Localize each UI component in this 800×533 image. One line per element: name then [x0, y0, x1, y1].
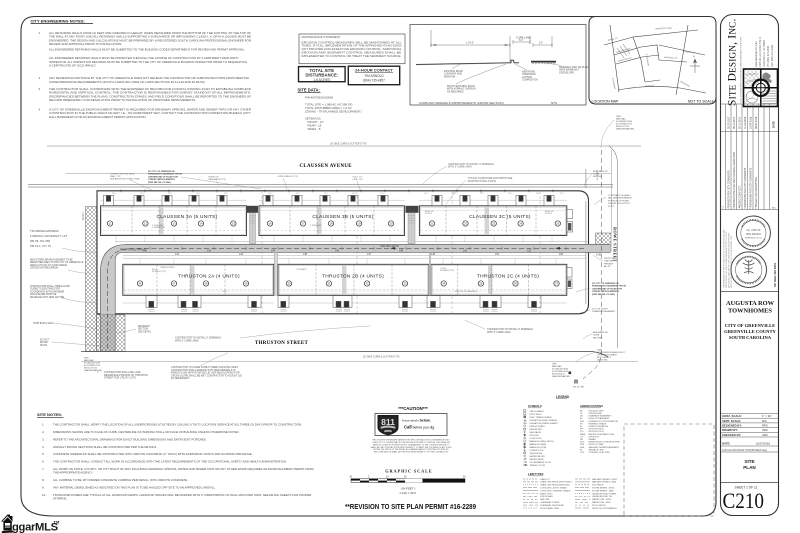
svg-text:32: 32: [366, 282, 369, 286]
svg-text:REFER TO THE ARCHITECTURAL DRA: REFER TO THE ARCHITECTURAL DRAWINGS FOR …: [53, 437, 207, 441]
svg-text:6.: 6.: [42, 460, 45, 464]
svg-text:L52: L52: [527, 250, 532, 253]
svg-text:(NAVD88/NAVD88): (NAVD88/NAVD88): [552, 375, 570, 378]
svg-text:L49: L49: [431, 253, 436, 256]
svg-text:OVERHEAD TELEPHONE: OVERHEAD TELEPHONE: [540, 504, 565, 507]
svg-text:CLAUSSEN AVENUE: CLAUSSEN AVENUE: [300, 164, 353, 169]
svg-text:27.0': 27.0': [508, 193, 512, 195]
svg-text:OVERHEAD POWER: OVERHEAD POWER: [540, 501, 560, 504]
svg-text:LIGHT POLE: LIGHT POLE: [530, 438, 543, 440]
svg-text:S: S: [524, 444, 525, 446]
svg-text:VITRIFIED CLAY PIPE: VITRIFIED CLAY PIPE: [589, 451, 611, 454]
svg-text:2+00: 2+00: [596, 254, 602, 257]
svg-text:THRUSTON 2A (4 UNITS): THRUSTON 2A (4 UNITS): [178, 274, 240, 280]
svg-text:27.0': 27.0': [452, 193, 456, 195]
svg-text:SETBACK(TYP): SETBACK(TYP): [440, 269, 454, 272]
svg-text:DISTURBANCE:: DISTURBANCE:: [305, 73, 338, 78]
svg-text:PB 13-L, PC 76: PB 13-L, PC 76: [30, 244, 51, 248]
svg-text:8.: 8.: [42, 478, 45, 482]
svg-text:VCP: VCP: [580, 452, 585, 454]
svg-text:DRAINAGE EASEMENT: DRAINAGE EASEMENT: [589, 415, 613, 418]
svg-text:TM #0091012500000: TM #0091012500000: [30, 229, 59, 233]
svg-text:COMPLETION: COMPLETION: [522, 79, 538, 82]
svg-text:WITH 2' CURB LAWN: WITH 2' CURB LAWN: [487, 331, 511, 334]
svg-text:SANITARY SEWER - EXIST.: SANITARY SEWER - EXIST.: [592, 478, 618, 481]
svg-text:DATE: DATE: [772, 121, 776, 128]
svg-text:TRAFFIC FLOW: TRAFFIC FLOW: [530, 464, 545, 467]
svg-text:7.: 7.: [97, 371, 99, 374]
svg-text:GREENVILLE SC: GREENVILLE SC: [745, 237, 763, 239]
svg-text:C210: C210: [723, 488, 765, 513]
svg-text:DESIGNED BY:: DESIGNED BY:: [722, 424, 742, 428]
svg-text:02-27-2017: 02-27-2017: [728, 116, 731, 129]
svg-text:SIDES - 5': SIDES - 5': [308, 127, 322, 131]
svg-text:27.0': 27.0': [168, 193, 172, 195]
svg-text:14: 14: [200, 222, 203, 226]
svg-text:FH 1/2" RD: FH 1/2" RD: [573, 387, 585, 389]
svg-text:CURB: CURB: [593, 335, 600, 337]
svg-text:19: 19: [358, 222, 361, 226]
svg-text:CITY OF GREENVILLE: CITY OF GREENVILLE: [725, 323, 775, 328]
svg-text:STREET IMPROVEMENTS: STREET IMPROVEMENTS: [592, 291, 620, 293]
svg-text:25: 25: [556, 222, 559, 226]
svg-text:GREENVILLE, SC 29607: GREENVILLE, SC 29607: [763, 39, 766, 67]
svg-text:NO.: NO.: [772, 207, 776, 209]
svg-text:JSM: JSM: [762, 428, 768, 432]
svg-text:GAS VALVE: GAS VALVE: [530, 431, 542, 434]
svg-text:9.: 9.: [42, 485, 45, 489]
svg-text:WITHOUT WRITTEN CONSENT OF SIT: WITHOUT WRITTEN CONSENT OF SITE DESIGN I…: [731, 236, 733, 288]
svg-text:THRUSTON 2B (4 UNITS): THRUSTON 2B (4 UNITS): [322, 274, 384, 280]
svg-text:LEGEND: LEGEND: [556, 395, 570, 399]
svg-text:27.0': 27.0': [296, 193, 300, 195]
svg-text:ASPHALT PAVING SECTIONS SHALL: ASPHALT PAVING SECTIONS SHALL BE CONSTRU…: [53, 445, 157, 449]
svg-text:26: 26: [139, 282, 142, 286]
svg-text:27.0': 27.0': [424, 193, 428, 195]
svg-text:STREET IMPROVEMENTS: STREET IMPROVEMENTS: [148, 179, 176, 181]
svg-text:(PER DB 536, PG 886): (PER DB 536, PG 886): [592, 294, 615, 296]
svg-text:REVISED PER CITY COMMENTS: REVISED PER CITY COMMENTS: [728, 170, 731, 207]
svg-text:21: 21: [431, 222, 434, 226]
svg-text:PLAN: PLAN: [743, 465, 756, 470]
svg-text:INVERT ELEVATION: INVERT ELEVATION: [589, 425, 609, 428]
svg-text:HORZ. SCALE:: HORZ. SCALE:: [722, 414, 742, 418]
svg-text:TRIANGLE EASEMENT: TRIANGLE EASEMENT: [592, 310, 616, 313]
svg-text:10.: 10.: [42, 493, 46, 497]
svg-text:MANHOLE (STM): MANHOLE (STM): [530, 446, 547, 449]
svg-text:LINE, TYP: LINE, TYP: [353, 179, 364, 181]
svg-text:SETBACK(TYP): SETBACK(TYP): [152, 270, 166, 273]
svg-text:35: 35: [479, 282, 482, 286]
svg-text:3.: 3.: [39, 87, 42, 91]
svg-text:NTS: NTS: [551, 101, 557, 105]
svg-text:GAS LINE: GAS LINE: [540, 498, 550, 501]
svg-text:7.: 7.: [42, 467, 45, 471]
svg-text:PROPOSED: PROPOSED: [604, 258, 617, 260]
svg-text:WITH 2' CURB LAWN: WITH 2' CURB LAWN: [448, 166, 472, 169]
svg-text:PH: (864) 271-0496: PH: (864) 271-0496: [767, 45, 770, 67]
svg-text:36: 36: [514, 282, 517, 286]
svg-text:27.0': 27.0': [324, 193, 328, 195]
svg-text:4.: 4.: [42, 445, 45, 449]
svg-text:CONCRETE SIDEWALKS SHALL BE CO: CONCRETE SIDEWALKS SHALL BE CONSTRUCTED …: [53, 452, 253, 456]
svg-text:30' DIKE CURB & GUTTER (TYP): 30' DIKE CURB & GUTTER (TYP): [330, 143, 367, 146]
svg-text:PERMANENT EASEMENT FROM: PERMANENT EASEMENT FROM: [148, 173, 182, 176]
svg-text:PIN #0070500100500: PIN #0070500100500: [305, 95, 334, 99]
svg-text:ISSUED FOR PERMITTING: ISSUED FOR PERMITTING: [755, 177, 758, 207]
svg-text:CROSSLOPE: CROSSLOPE: [559, 71, 574, 74]
svg-text:TM: TM: [54, 520, 60, 525]
svg-text:15: 15: [232, 222, 235, 226]
svg-text:EDGE OF PAVEMENT: EDGE OF PAVEMENT: [589, 417, 611, 420]
svg-text:FORCE MAIN: FORCE MAIN: [540, 495, 553, 498]
svg-text:4.: 4.: [39, 108, 42, 112]
svg-text:(CROSS HATCHED AREA): (CROSS HATCHED AREA): [30, 267, 58, 270]
svg-text:HALL BASEMENT) FOR AN ENCROACH: HALL BASEMENT) FOR AN ENCROACHMENT PERMI…: [49, 115, 147, 119]
svg-text:DIMENSIONS SHOWN ARE TO FACE O: DIMENSIONS SHOWN ARE TO FACE OF CURB, CE…: [53, 430, 240, 434]
svg-text:WINDOW 25.5 AVERAGE: WINDOW 25.5 AVERAGE: [455, 290, 478, 293]
svg-text:CUTS: CUTS: [608, 206, 614, 208]
svg-text:34: 34: [442, 282, 445, 286]
svg-text:27.0': 27.0': [536, 193, 540, 195]
svg-text:DO NOT: DO NOT: [40, 340, 50, 342]
svg-text:SILT FENCE: SILT FENCE: [592, 485, 604, 487]
svg-text:SC REG NO 2857: SC REG NO 2857: [773, 262, 777, 287]
svg-text:26.0': 26.0': [223, 291, 228, 293]
svg-text:REVISED SITE PLAN PER GENERAL: REVISED SITE PLAN PER GENERAL DEVELOPM: [733, 152, 736, 207]
svg-text:CURB AND SIDEWALK IMPROVEMENTS: CURB AND SIDEWALK IMPROVEMENTS (CROSS SE…: [419, 101, 504, 105]
svg-text:ALLEY: ALLEY: [604, 265, 611, 268]
svg-text:(PER DB 536, PG 886): (PER DB 536, PG 886): [148, 182, 171, 184]
svg-text:ENTER: ENTER: [40, 342, 48, 344]
svg-text:31: 31: [328, 282, 331, 286]
svg-text:STORMWATER FLOW: STORMWATER FLOW: [530, 461, 551, 464]
svg-text:SITE DESIGN, INC.: SITE DESIGN, INC.: [727, 18, 739, 106]
svg-text:20' CITY OF GREENVILLE: 20' CITY OF GREENVILLE: [148, 171, 175, 173]
svg-text:(NAVD88/NAVD88): (NAVD88/NAVD88): [616, 128, 634, 131]
svg-text:SIGNS: SIGNS: [40, 345, 48, 347]
svg-text:RPS: RPS: [762, 424, 768, 428]
svg-text:PORCH: PORCH: [545, 213, 552, 215]
svg-text:1325 MILLER ROAD STE D: 1325 MILLER ROAD STE D: [759, 37, 762, 67]
svg-text:SITE DATA:: SITE DATA:: [298, 87, 320, 92]
svg-text:GREENVILLE COUNTY: GREENVILLE COUNTY: [724, 329, 776, 334]
svg-text:CONNECTION: CONNECTION: [152, 227, 165, 229]
svg-text:23: 23: [492, 222, 495, 226]
svg-text:ROOF DRAIN - NEW: ROOF DRAIN - NEW: [540, 507, 559, 510]
svg-text:01/07/2016: 01/07/2016: [756, 442, 770, 446]
svg-text:ANY MATERIAL DEMOLISHED AS IND: ANY MATERIAL DEMOLISHED AS INDICATED ON …: [53, 485, 216, 489]
svg-text:OPEN SPACE (TYP): OPEN SPACE (TYP): [278, 175, 299, 178]
svg-text:RIGHT OF WAY: RIGHT OF WAY: [589, 443, 605, 446]
svg-text:FIBER OPTIC: FIBER OPTIC: [540, 493, 553, 495]
svg-text:ZONING - TR (PLANNED DEVELOPME: ZONING - TR (PLANNED DEVELOPMENT): [305, 109, 362, 113]
svg-text:JSM: JSM: [762, 433, 768, 437]
svg-text:18' X 18' SIGHT: 18' X 18' SIGHT: [592, 309, 608, 311]
svg-text:ELEVATION (DEMO GRADE): ELEVATION (DEMO GRADE): [530, 419, 558, 422]
svg-text:11-16-2016: 11-16-2016: [744, 116, 747, 129]
svg-text:No. C00710: No. C00710: [746, 228, 760, 232]
svg-text:09-01-2016: 09-01-2016: [755, 116, 758, 129]
svg-text:CONTOURS - EXIST. GRADE: CONTOURS - EXIST. GRADE: [540, 487, 568, 490]
svg-text:5' SIDEWALK: 5' SIDEWALK: [310, 224, 322, 227]
svg-text:POWER POLE: POWER POLE: [530, 450, 545, 452]
svg-text:1.: 1.: [39, 31, 42, 35]
svg-text:MANHOLE (WELL/BOTH): MANHOLE (WELL/BOTH): [530, 440, 555, 443]
svg-text:27.0': 27.0': [352, 193, 356, 195]
svg-text:( IN FEET ): ( IN FEET ): [401, 486, 416, 490]
svg-text:REBAR: REBAR: [589, 438, 597, 441]
svg-text:SOUTH CAROLINA: SOUTH CAROLINA: [729, 335, 772, 340]
svg-text:STRIPING.: STRIPING.: [53, 496, 68, 500]
svg-text:36.19' ALONG R/W: 36.19' ALONG R/W: [585, 168, 588, 188]
svg-text:LOCATION MAP: LOCATION MAP: [592, 100, 619, 104]
svg-text:CLAUSSEN 3B (5 UNITS): CLAUSSEN 3B (5 UNITS): [312, 214, 373, 220]
svg-text:1.6 ACRES: 1.6 ACRES: [313, 78, 331, 82]
svg-text:STORM SEWER - EXIST.: STORM SEWER - EXIST.: [592, 488, 615, 490]
svg-text:LINETYPES: LINETYPES: [528, 472, 544, 476]
svg-text:ADA RAMP W/: ADA RAMP W/: [593, 331, 608, 334]
svg-text:27.0': 27.0': [480, 193, 484, 195]
svg-text:TRANSFORMER: TRANSFORMER: [160, 266, 175, 269]
svg-text:CONTRACTOR SHALL THREE CURB: CONTRACTOR SHALL THREE CURB: [30, 285, 70, 288]
svg-text:ONE WAY ROAD: ONE WAY ROAD: [380, 245, 399, 248]
svg-text:16' ALLEY: 16' ALLEY: [596, 169, 599, 180]
svg-text:CONTRACTOR SHALL: CONTRACTOR SHALL: [608, 194, 632, 197]
svg-text:L48: L48: [399, 250, 404, 253]
svg-text:CATCH BASIN: CATCH BASIN: [530, 410, 544, 413]
svg-text:THE CONTRACTOR SHALL VERIFY TH: THE CONTRACTOR SHALL VERIFY THE LOCATION…: [53, 423, 302, 427]
svg-text:DEDICATED AREA TO THE CITY OF: DEDICATED AREA TO THE CITY OF GREENVILLE: [30, 261, 84, 264]
svg-text:13: 13: [173, 222, 176, 226]
svg-text:THRUSTON STREET: THRUSTON STREET: [255, 341, 309, 346]
svg-text:27.0': 27.0': [380, 193, 384, 195]
svg-text:THE CONTRACTOR SHALL BE THE SO: THE CONTRACTOR SHALL BE THE SOLE RESPONS…: [374, 451, 449, 454]
svg-text:ARCHITECTURAL PLANS: ARCHITECTURAL PLANS: [468, 180, 497, 183]
svg-text:ALL CURBING TO BE 18" FORMED C: ALL CURBING TO BE 18" FORMED CONCRETE CU…: [53, 478, 188, 482]
svg-text:3.: 3.: [42, 437, 45, 441]
svg-text:IRON PIN: IRON PIN: [530, 435, 540, 437]
svg-text:DRAINAGE INTO NEW GUTTER: DRAINAGE INTO NEW GUTTER: [30, 296, 64, 299]
svg-text:L50: L50: [463, 250, 468, 253]
svg-text:5.0': 5.0': [539, 42, 543, 45]
svg-text:PORCH: PORCH: [425, 213, 432, 215]
svg-text:CIVIL ENGINEERING SURVEYING: CIVIL ENGINEERING SURVEYING LANDSCAPE AR…: [740, 36, 743, 103]
svg-text:N/A: N/A: [762, 419, 767, 423]
svg-text:STOP BAR & SIGN: STOP BAR & SIGN: [33, 322, 53, 325]
svg-text:Call before you dig.: Call before you dig.: [404, 425, 435, 430]
svg-text:WATER LINE - EXIST.: WATER LINE - EXIST.: [592, 498, 612, 501]
svg-text:TIM ARNOLD: TIM ARNOLD: [364, 74, 384, 78]
svg-text:1 inch = 30 ft.: 1 inch = 30 ft.: [399, 491, 417, 495]
svg-text:CLAUSSEN 3A (5 UNITS): CLAUSSEN 3A (5 UNITS): [157, 214, 218, 220]
svg-text:CHAIN LINK FENCE (PROPOSED): CHAIN LINK FENCE (PROPOSED): [540, 481, 572, 484]
svg-text:ggarMLS: ggarMLS: [12, 522, 59, 533]
svg-text:STREET FOR UTILITY: STREET FOR UTILITY: [608, 203, 631, 205]
svg-text:20: 20: [390, 222, 393, 226]
svg-text:84.37' ±: 84.37' ±: [82, 211, 85, 220]
svg-text:FINISHED GRADE: FINISHED GRADE: [589, 422, 607, 425]
svg-text:ROWE STREET: ROWE STREET: [613, 227, 618, 262]
svg-text:FINISHED FLOOR ELEVATION: FINISHED FLOOR ELEVATION: [589, 420, 619, 423]
svg-text:L42: L42: [207, 250, 212, 253]
svg-text:PRIVATE ALLEY/ROAD: PRIVATE ALLEY/ROAD: [120, 249, 146, 252]
svg-text:RECORD IMMEDIATELY FOR RESOLUT: RECORD IMMEDIATELY FOR RESOLUTION PRIOR …: [49, 98, 196, 102]
svg-text:VERT. SCALE:: VERT. SCALE:: [722, 419, 741, 423]
svg-text:30: 30: [288, 282, 291, 286]
svg-text:REVIEW AND APPROVAL PRIOR TO I: REVIEW AND APPROVAL PRIOR TO INSTALLATIO…: [49, 42, 122, 46]
svg-text:CENTERLINE OF ROAD FOR: CENTERLINE OF ROAD FOR: [592, 287, 622, 290]
svg-text:ABBREVIATIONS: ABBREVIATIONS: [580, 404, 603, 408]
svg-text:CONTOURS - FINISHED GRADE: CONTOURS - FINISHED GRADE: [540, 489, 571, 492]
svg-text:16: 16: [269, 222, 272, 226]
svg-text:20' CITY OF GREENVILLE: 20' CITY OF GREENVILLE: [592, 283, 619, 285]
svg-text:27.0': 27.0': [112, 193, 116, 195]
svg-text:AREA=1,670 SQ FT (0.035 ACRES: AREA=1,670 SQ FT (0.035 ACRES): [30, 264, 67, 267]
svg-text:811: 811: [381, 417, 395, 427]
svg-text:22: 22: [464, 222, 467, 226]
svg-text:± 70.0': ± 70.0': [466, 41, 474, 45]
svg-text:AS REQUIRED: AS REQUIRED: [447, 90, 464, 93]
svg-text:DATE:: DATE:: [722, 442, 730, 446]
svg-text:2.: 2.: [42, 430, 45, 434]
svg-text:COORDINATE WITH ENGINEER: COORDINATE WITH ENGINEER: [30, 290, 65, 293]
svg-text:27.0': 27.0': [140, 193, 144, 195]
svg-text:5.0': 5.0': [519, 39, 523, 42]
svg-text:SITE NOTES:: SITE NOTES:: [37, 412, 62, 417]
svg-text:WATER VALVE: WATER VALVE: [530, 458, 545, 461]
svg-text:AND ENSURE POSITIVE: AND ENSURE POSITIVE: [30, 293, 57, 296]
svg-text:AS NECESSARY: AS NECESSARY: [171, 377, 190, 380]
svg-text:5.: 5.: [42, 452, 45, 456]
svg-text:L45: L45: [303, 253, 308, 256]
svg-text:GAS METER: GAS METER: [530, 428, 543, 431]
svg-text:MAINTAIN: MAINTAIN: [444, 75, 456, 78]
svg-text:NOT TO SCALE: NOT TO SCALE: [688, 100, 715, 104]
svg-text:LIMITS OF DISTURBANCE: LIMITS OF DISTURBANCE: [592, 507, 617, 510]
svg-text:ADDED CONFLICT: ADDED CONFLICT: [739, 185, 742, 207]
svg-text:L44: L44: [271, 250, 276, 253]
svg-text:SANITARY SEWER - NEW: SANITARY SEWER - NEW: [592, 481, 616, 484]
svg-text:(864) 735-4857: (864) 735-4857: [363, 78, 385, 82]
svg-text:27.0': 27.0': [560, 193, 564, 195]
svg-text:CODE/ORDINANCE REQUIREMENTS (S: CODE/ORDINANCE REQUIREMENTS (SOUTH CAROL…: [49, 80, 206, 84]
svg-text:SYMBOLS: SYMBOLS: [528, 404, 542, 408]
svg-text:12: 12: [144, 222, 147, 226]
svg-text:SETBACK LINE: SETBACK LINE: [589, 448, 605, 451]
svg-text:24-HOUR CONTACT: 24-HOUR CONTACT: [355, 68, 393, 73]
svg-text:REVISIONS PER CITY COMMENTS: REVISIONS PER CITY COMMENTS: [744, 167, 747, 207]
svg-text:THRUSTON 2C (4 UNITS): THRUSTON 2C (4 UNITS): [477, 274, 539, 280]
svg-text:1" = 30': 1" = 30': [762, 414, 772, 418]
svg-text:17: 17: [302, 222, 305, 226]
svg-text:29: 29: [245, 282, 248, 286]
svg-text:CLAUSSEN 3C (5 UNITS): CLAUSSEN 3C (5 UNITS): [469, 214, 531, 220]
svg-text:WITH 2' CURB LAWN: WITH 2' CURB LAWN: [175, 339, 199, 342]
svg-text:MANHOLE (SAN): MANHOLE (SAN): [530, 443, 547, 446]
svg-text:ELEVATION (FINISH GRADE): ELEVATION (FINISH GRADE): [530, 422, 558, 425]
svg-text:WATER LINE - NEW: WATER LINE - NEW: [592, 501, 611, 504]
svg-text:SITE DESIGN: SITE DESIGN: [746, 233, 761, 236]
svg-text:MILL AND RESURFACE: MILL AND RESURFACE: [608, 197, 632, 200]
svg-text:A CERTIFICATE OF OCCUPANCY.: A CERTIFICATE OF OCCUPANCY.: [49, 64, 96, 68]
svg-text:THE APPROPRIATE AGENCY.: THE APPROPRIATE AGENCY.: [53, 471, 93, 475]
svg-text:TRUNCATED DOMES ARE TYPICAL AT: TRUNCATED DOMES ARE TYPICAL AT ALL HANDI…: [53, 493, 311, 497]
svg-text:WATER METER: WATER METER: [530, 455, 546, 458]
svg-text:L46: L46: [335, 250, 340, 253]
svg-text:N: N: [693, 56, 695, 59]
svg-text:(NAVD 88): (NAVD 88): [597, 359, 608, 362]
svg-text:WOOD FENCE: WOOD FENCE: [592, 505, 606, 507]
svg-text:DRIVEWAY: DRIVEWAY: [138, 325, 150, 328]
svg-text:CURBS TO EXISTING/STOP: CURBS TO EXISTING/STOP: [30, 289, 60, 291]
svg-text:UNDERGROUND POWER: UNDERGROUND POWER: [592, 493, 617, 495]
svg-text:DROP INLET: DROP INLET: [530, 414, 543, 416]
svg-text:**REVISION TO SITE PLAN PERMIT: **REVISION TO SITE PLAN PERMIT #16-2289: [345, 504, 476, 511]
svg-text:CENTERLINE OF ROAD FOR: CENTERLINE OF ROAD FOR: [148, 175, 178, 178]
svg-text:CHAIN LINK FENCE (EXISTING): CHAIN LINK FENCE (EXISTING): [540, 484, 570, 487]
svg-text:SECTION: SECTION: [138, 329, 149, 331]
svg-text:2.: 2.: [39, 76, 42, 80]
svg-text:103AUGUSTAROW TOWNHOMES.dwg: 103AUGUSTAROW TOWNHOMES.dwg: [722, 449, 767, 452]
svg-text:TELEPHONE: TELEPHONE: [530, 453, 543, 455]
svg-text:10-07-2016: 10-07-2016: [750, 116, 753, 129]
svg-text:05-11-2017: 05-11-2017: [733, 116, 736, 129]
svg-text:FAX: (864) 271-0462: FAX: (864) 271-0462: [771, 44, 774, 67]
svg-text:L43: L43: [239, 253, 244, 256]
svg-text:STREET FOR UTILITY CUTS: STREET FOR UTILITY CUTS: [104, 377, 136, 380]
svg-text:DRAWN BY:: DRAWN BY:: [722, 428, 738, 432]
svg-text:L51: L51: [495, 253, 500, 256]
svg-text:THE CONTRACTOR SHALL CONDUCT A: THE CONTRACTOR SHALL CONDUCT ALL WORK IN…: [53, 460, 287, 464]
svg-text:L47: L47: [367, 253, 372, 256]
svg-text:UNDERGROUND TEL.: UNDERGROUND TEL.: [592, 496, 613, 498]
svg-text:1.: 1.: [42, 423, 45, 427]
svg-text:FURMAN UNIVERSITY H/T: FURMAN UNIVERSITY H/T: [30, 234, 67, 238]
svg-text:ONE WAY: ONE WAY: [604, 260, 615, 263]
svg-text:SEE ARCHITECTURAL PLAN: SEE ARCHITECTURAL PLAN: [110, 177, 140, 180]
svg-text:ELEC TRANSFORMER: ELEC TRANSFORMER: [530, 416, 553, 419]
svg-text:GRAPHIC SCALE: GRAPHIC SCALE: [385, 469, 432, 474]
svg-text:RETURN: RETURN: [593, 337, 603, 339]
svg-text:FIRE HYDRANT: FIRE HYDRANT: [530, 425, 546, 428]
svg-text:(NAVD88/NAVD88): (NAVD88/NAVD88): [84, 369, 102, 372]
svg-text:ALL ENGINEERED RETAINING WALLS: ALL ENGINEERED RETAINING WALLS MUST BE S…: [49, 48, 245, 52]
svg-text:27.0': 27.0': [196, 193, 200, 195]
svg-text:***CAUTION***: ***CAUTION***: [398, 406, 428, 411]
svg-text:30' DIKE CURB & GUTTER (TYP): 30' DIKE CURB & GUTTER (TYP): [363, 355, 400, 358]
svg-text:CHECKED BY:: CHECKED BY:: [722, 433, 741, 437]
svg-text:24: 24: [519, 222, 522, 226]
svg-text:L41: L41: [175, 253, 180, 256]
svg-text:27: 27: [173, 282, 176, 286]
svg-text:CITY ENGINEERING NOTES:: CITY ENGINEERING NOTES:: [31, 18, 85, 23]
svg-text:STORM SEWER - NEW: STORM SEWER - NEW: [592, 490, 614, 492]
svg-text:27.0': 27.0': [224, 193, 228, 195]
svg-text:SITE: SITE: [744, 459, 754, 464]
svg-text:27.0': 27.0': [268, 193, 272, 195]
svg-text:9' SETBACK: 9' SETBACK: [296, 268, 308, 271]
svg-text:TOWNHOMES: TOWNHOMES: [728, 308, 772, 315]
svg-text:MAINTENANCE STATEMENT: MAINTENANCE STATEMENT: [302, 35, 341, 39]
svg-text:L53: L53: [559, 253, 564, 256]
svg-text:REVISIONS PER CITY COMMENTS: REVISIONS PER CITY COMMENTS: [750, 167, 753, 207]
svg-text:PERMANENT EASEMENT FROM: PERMANENT EASEMENT FROM: [592, 285, 626, 288]
svg-text:18: 18: [330, 222, 333, 226]
svg-text:07-11-2017: 07-11-2017: [739, 116, 742, 129]
svg-text:CABLE TV: CABLE TV: [540, 478, 550, 481]
svg-text:PRIVATE: PRIVATE: [604, 262, 614, 265]
